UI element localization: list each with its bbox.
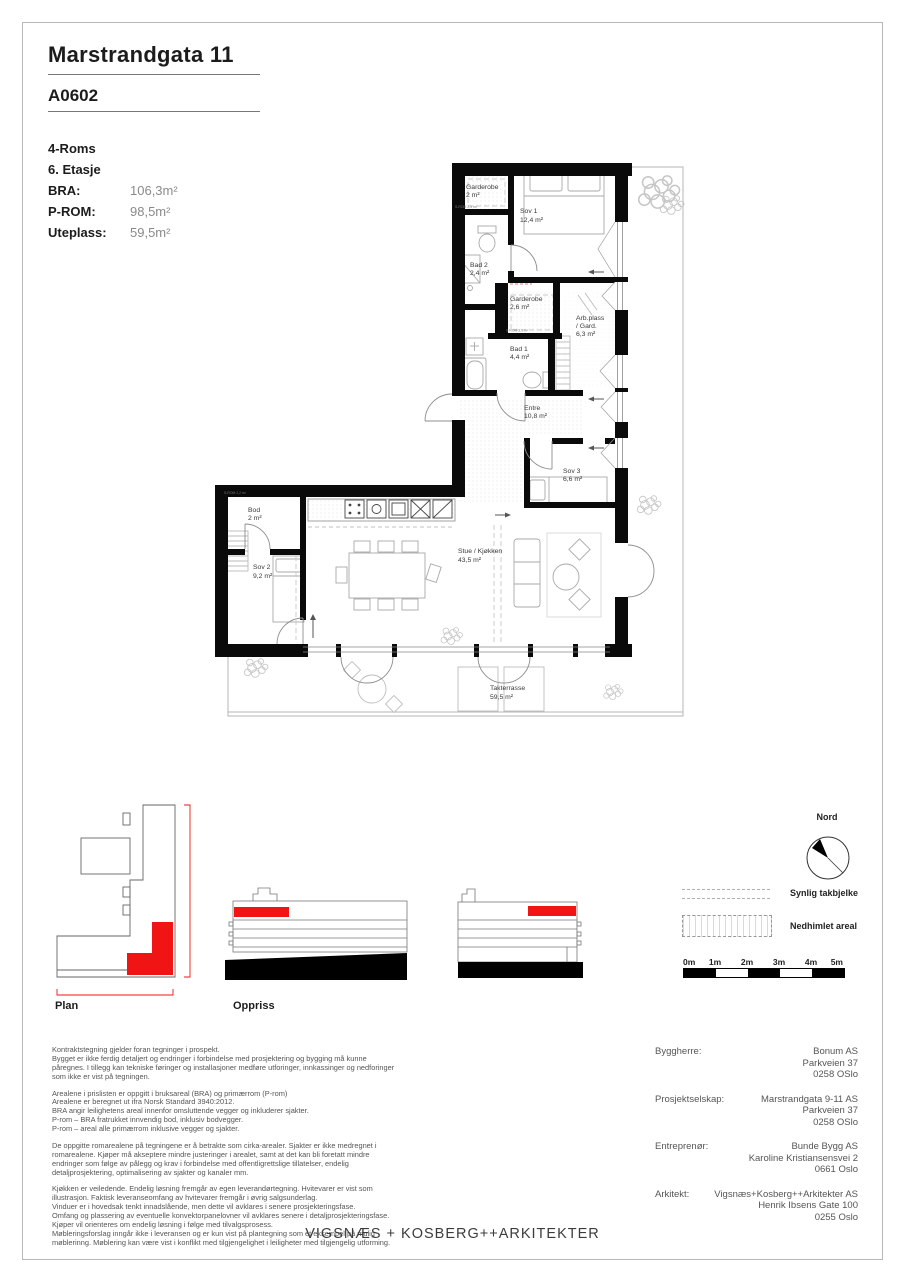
room-area: 2,6 m² <box>510 304 530 311</box>
ground <box>225 953 407 980</box>
legend-label: Nedhimlet areal <box>790 921 857 931</box>
room-area: 10,8 m² <box>524 413 548 420</box>
scale-bar: 0m 1m 2m 3m 4m 5m <box>683 957 845 978</box>
contact-row: Prosjektselskap: Marstrandgata 9-11 AS P… <box>655 1094 858 1129</box>
room-area: 2 m² <box>466 192 480 199</box>
room-label: Sov 1 <box>520 208 538 215</box>
ground <box>458 962 583 978</box>
srom-label: S-ROM 3,1 m² <box>506 329 529 333</box>
room-area: 6,3 m² <box>576 331 596 338</box>
contact-role: Arkitekt: <box>655 1189 689 1224</box>
room-label: Sov 2 <box>253 564 271 571</box>
metric-value: 98,5m² <box>130 201 170 222</box>
metric-row: BRA: 106,3m² <box>48 180 178 201</box>
contact-role: Byggherre: <box>655 1046 701 1081</box>
scale-tick: 1m <box>709 957 721 967</box>
metric-label: P-ROM: <box>48 201 130 222</box>
legend-swatch-takbjelke <box>682 889 770 899</box>
metric-value: 106,3m² <box>130 180 178 201</box>
project-title: Marstrandgata 11 <box>48 42 260 68</box>
unit-id-block: A0602 <box>48 86 260 112</box>
project-title-block: Marstrandgata 11 <box>48 42 260 75</box>
room-count: 4-Roms <box>48 138 178 159</box>
room-label: Garderobe <box>466 184 499 191</box>
architect-footer: VIGSNÆS + KOSBERG++ARKITEKTER <box>0 1226 905 1242</box>
scale-ticks: 0m 1m 2m 3m 4m 5m <box>683 957 845 968</box>
legend-swatch-nedhimlet <box>682 915 772 937</box>
site-plan <box>40 795 210 1005</box>
srom-label: S-ROM 2,5 m² <box>455 205 478 209</box>
elevation-1-drawing <box>215 880 415 985</box>
north-label: Nord <box>792 812 862 822</box>
room-area: 59,5 m² <box>490 694 514 701</box>
legal-disclaimer: Kontraktstegning gjelder foran tegninger… <box>52 1046 400 1256</box>
floor-plan-drawing: Garderobe 2 m² Sov 1 12,4 m² Bad 2 2,4 m… <box>205 155 695 730</box>
room-area: 12,4 m² <box>520 217 544 224</box>
room-area: 9,2 m² <box>253 573 273 580</box>
scale-tick: 0m <box>683 957 695 967</box>
room-label: Sov 3 <box>563 468 581 475</box>
metric-label: BRA: <box>48 180 130 201</box>
room-label: Bad 2 <box>470 262 488 269</box>
scale-tick: 5m <box>831 957 843 967</box>
floor-number: 6. Etasje <box>48 159 178 180</box>
contact-row: Entreprenør: Bunde Bygg AS Karoline Kris… <box>655 1141 858 1176</box>
unit-id: A0602 <box>48 86 260 106</box>
room-area: 2,4 m² <box>470 270 490 277</box>
contact-address: Bunde Bygg AS Karoline Kristiansensvei 2… <box>749 1141 858 1176</box>
room-area: 2 m² <box>248 515 262 522</box>
room-label: Arb.plass <box>576 315 605 322</box>
floor-plan: Garderobe 2 m² Sov 1 12,4 m² Bad 2 2,4 m… <box>205 155 695 730</box>
room-label: / Gard. <box>576 323 597 330</box>
scale-tick: 2m <box>741 957 753 967</box>
legal-paragraph: Arealene i prislisten er oppgitt i bruks… <box>52 1090 400 1134</box>
site-plan-label: Plan <box>55 1000 78 1012</box>
metric-label: Uteplass: <box>48 222 130 243</box>
contact-role: Prosjektselskap: <box>655 1094 724 1129</box>
elevation-2 <box>450 880 590 985</box>
site-plan-drawing <box>40 795 210 1005</box>
room-label: Bod <box>248 507 260 514</box>
room-label: Garderobe <box>510 296 543 303</box>
room-label: Stue / Kjøkken <box>458 548 502 555</box>
room-label: Takterrasse <box>490 685 525 692</box>
project-contacts: Byggherre: Bonum AS Parkveien 37 0258 OS… <box>655 1046 858 1236</box>
contact-row: Byggherre: Bonum AS Parkveien 37 0258 OS… <box>655 1046 858 1081</box>
room-label: Entre <box>524 405 540 412</box>
legal-paragraph: De oppgitte romarealene på tegningene er… <box>52 1142 400 1178</box>
contact-row: Arkitekt: Vigsnæs+Kosberg++Arkitekter AS… <box>655 1189 858 1224</box>
contact-address: Bonum AS Parkveien 37 0258 OSlo <box>803 1046 858 1081</box>
elevation-2-drawing <box>450 880 590 985</box>
room-labels: Garderobe 2 m² Sov 1 12,4 m² Bad 2 2,4 m… <box>224 184 605 701</box>
drawing-sheet: Marstrandgata 11 A0602 4-Roms 6. Etasje … <box>0 0 905 1280</box>
apartment-highlight <box>127 922 173 975</box>
legend-label: Synlig takbjelke <box>790 888 858 898</box>
room-area: 6,6 m² <box>563 476 583 483</box>
apartment-summary: 4-Roms 6. Etasje BRA: 106,3m² P-ROM: 98,… <box>48 138 178 243</box>
north-arrow <box>792 826 862 888</box>
contact-address: Marstrandgata 9-11 AS Parkveien 37 0258 … <box>761 1094 858 1129</box>
metric-row: Uteplass: 59,5m² <box>48 222 178 243</box>
scale-tick: 3m <box>773 957 785 967</box>
legal-paragraph: Kontraktstegning gjelder foran tegninger… <box>52 1046 400 1082</box>
furniture <box>224 170 607 712</box>
elevation-label: Oppriss <box>233 1000 275 1012</box>
room-area: 43,5 m² <box>458 557 482 564</box>
apartment-highlight <box>234 907 289 917</box>
contact-address: Vigsnæs+Kosberg++Arkitekter AS Henrik Ib… <box>714 1189 858 1224</box>
elevation-1 <box>215 880 415 985</box>
room-area: 4,4 m² <box>510 354 530 361</box>
apartment-highlight <box>528 906 576 916</box>
contact-role: Entreprenør: <box>655 1141 708 1176</box>
srom-label: S-ROM 2,2 m² <box>224 491 247 495</box>
scale-tick: 4m <box>805 957 817 967</box>
scale-segments <box>683 968 845 978</box>
metric-value: 59,5m² <box>130 222 170 243</box>
metric-row: P-ROM: 98,5m² <box>48 201 178 222</box>
room-label: Bad 1 <box>510 346 528 353</box>
